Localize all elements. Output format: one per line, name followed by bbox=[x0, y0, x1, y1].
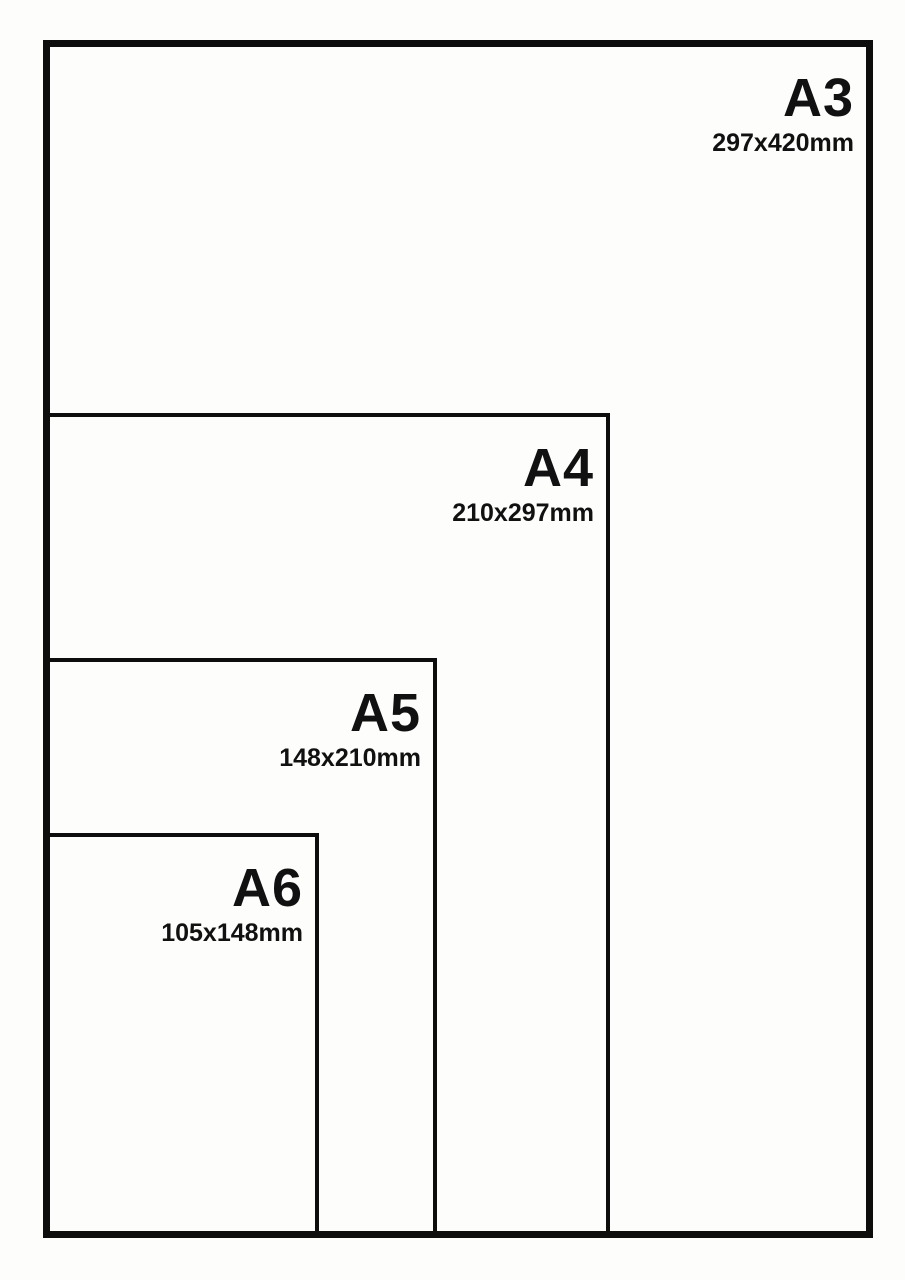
a6-label-block: A6 105x148mm bbox=[161, 861, 303, 948]
a5-label-block: A5 148x210mm bbox=[279, 686, 421, 773]
a3-dimensions-label: 297x420mm bbox=[712, 128, 854, 158]
a6-dimensions-label: 105x148mm bbox=[161, 918, 303, 948]
a6-paper-outline: A6 105x148mm bbox=[50, 833, 319, 1231]
a3-label-block: A3 297x420mm bbox=[712, 71, 854, 158]
a4-size-label: A4 bbox=[452, 441, 594, 495]
a5-dimensions-label: 148x210mm bbox=[279, 743, 421, 773]
a5-size-label: A5 bbox=[279, 686, 421, 740]
a4-dimensions-label: 210x297mm bbox=[452, 498, 594, 528]
a3-size-label: A3 bbox=[712, 71, 854, 125]
a6-size-label: A6 bbox=[161, 861, 303, 915]
a4-label-block: A4 210x297mm bbox=[452, 441, 594, 528]
paper-size-diagram: A3 297x420mm A4 210x297mm A5 148x210mm A… bbox=[0, 0, 905, 1280]
